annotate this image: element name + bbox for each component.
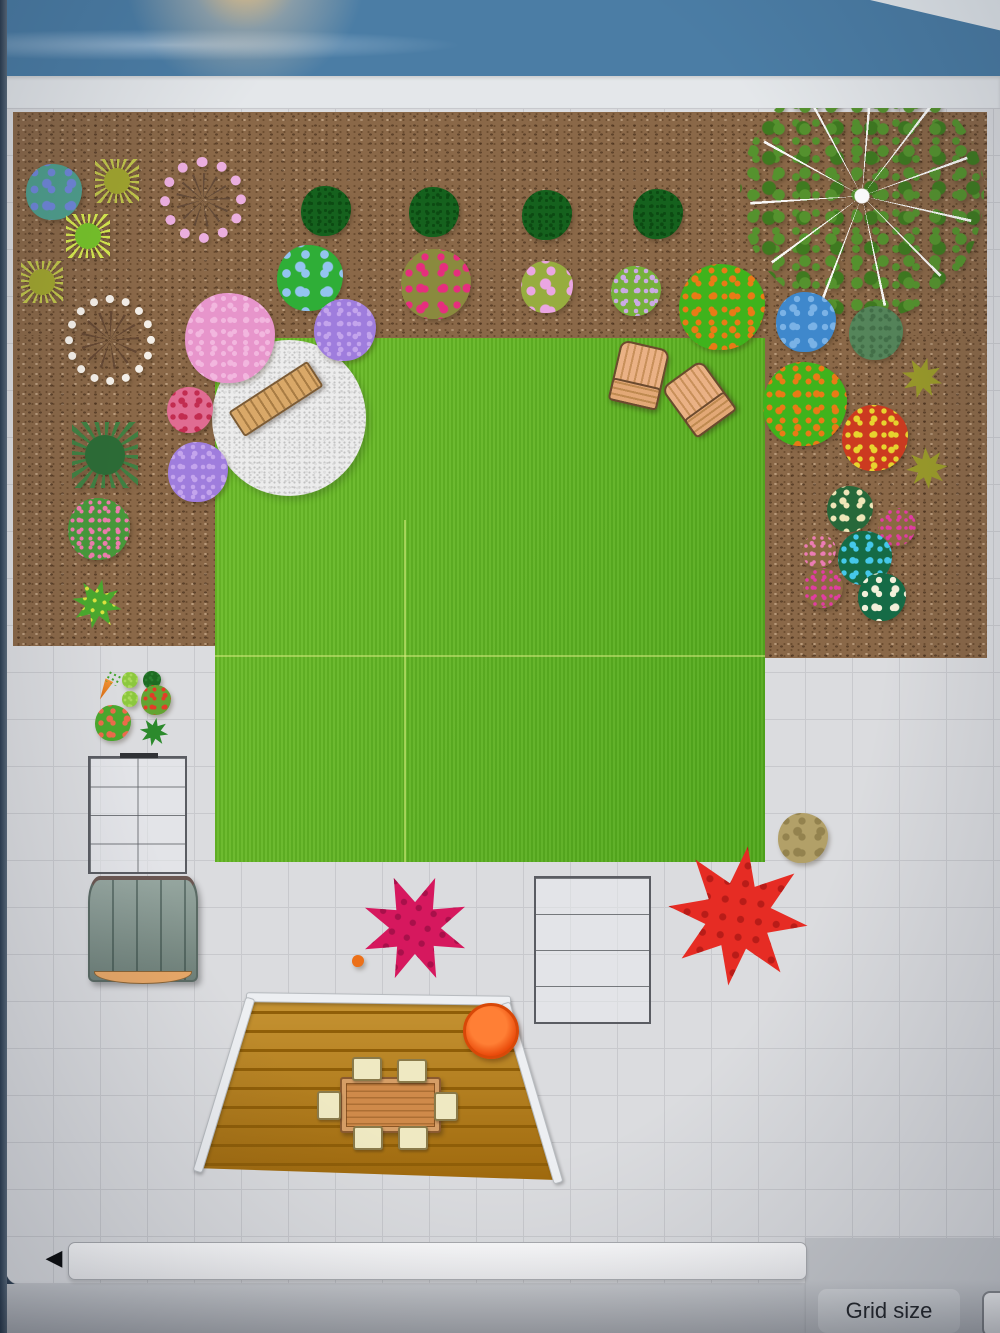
fire-bowl[interactable]: [463, 1003, 519, 1059]
garden-rock[interactable]: [778, 813, 828, 863]
white-blossom-wreath[interactable]: [55, 285, 165, 395]
photo-edge: [0, 0, 7, 1333]
scroll-left-arrow-icon[interactable]: ◀: [42, 1240, 66, 1276]
orange-ball-accent[interactable]: [352, 955, 364, 967]
olive-spiky-plant-1[interactable]: [95, 159, 139, 203]
partial-right-button[interactable]: [982, 1291, 1000, 1333]
dining-chair-top-2[interactable]: [397, 1059, 427, 1083]
lawn-grid-line-vertical: [404, 520, 406, 862]
dining-chair-bottom-1[interactable]: [353, 1126, 383, 1150]
crimson-maple-bush[interactable]: [337, 850, 493, 1006]
garden-shed[interactable]: [88, 876, 198, 982]
raised-bed-large[interactable]: [534, 876, 651, 1024]
green-spiky-plant[interactable]: [66, 214, 110, 258]
garden-layer: [0, 0, 1000, 1333]
carrot-icon[interactable]: [92, 671, 122, 701]
raised-bed-small[interactable]: [88, 756, 187, 874]
conifer-plant[interactable]: [72, 422, 138, 488]
horizontal-scrollbar[interactable]: [68, 1242, 807, 1280]
tomato-plant[interactable]: [141, 685, 171, 715]
pink-blossom-wreath[interactable]: [151, 148, 255, 252]
lettuce-plant-2[interactable]: [122, 691, 138, 707]
lettuce-plant-1[interactable]: [122, 672, 138, 688]
zucchini-plant[interactable]: [135, 713, 172, 750]
toolbar-band: [0, 76, 1000, 108]
dining-chair-right[interactable]: [434, 1092, 458, 1121]
dining-chair-left[interactable]: [317, 1091, 341, 1120]
dining-chair-top-1[interactable]: [352, 1057, 382, 1081]
garden-planner-screen: ◀ Grid size: [0, 0, 1000, 1333]
strawberry-plant[interactable]: [95, 705, 131, 741]
dining-table[interactable]: [340, 1077, 441, 1133]
dining-chair-bottom-2[interactable]: [398, 1126, 428, 1150]
lawn-grid-line-horizontal: [215, 655, 765, 657]
monitor-top-band: [0, 0, 1000, 76]
grid-size-button[interactable]: Grid size: [818, 1289, 960, 1333]
